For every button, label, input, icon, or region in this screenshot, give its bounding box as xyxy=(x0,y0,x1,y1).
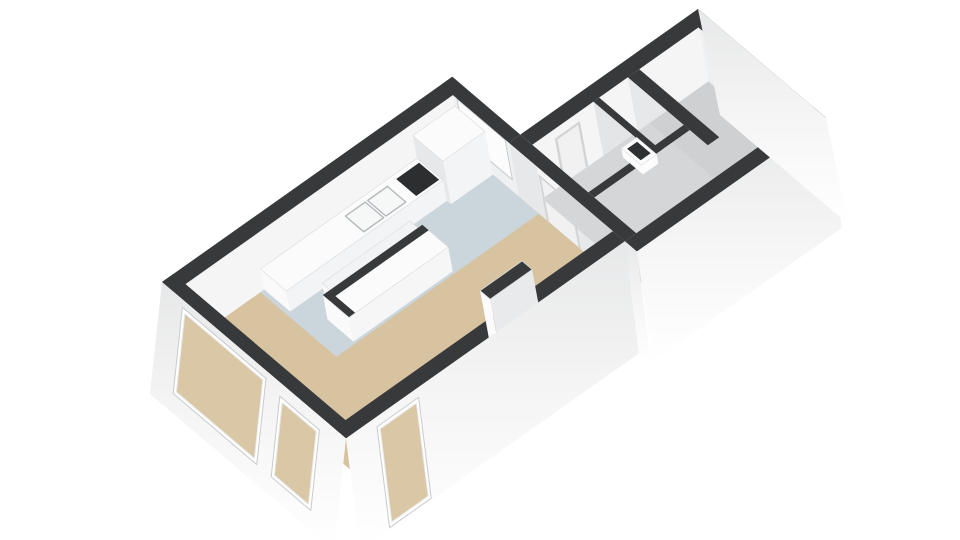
floor-plan-viewport xyxy=(0,0,960,540)
floor-plan-3d-render xyxy=(0,0,960,540)
